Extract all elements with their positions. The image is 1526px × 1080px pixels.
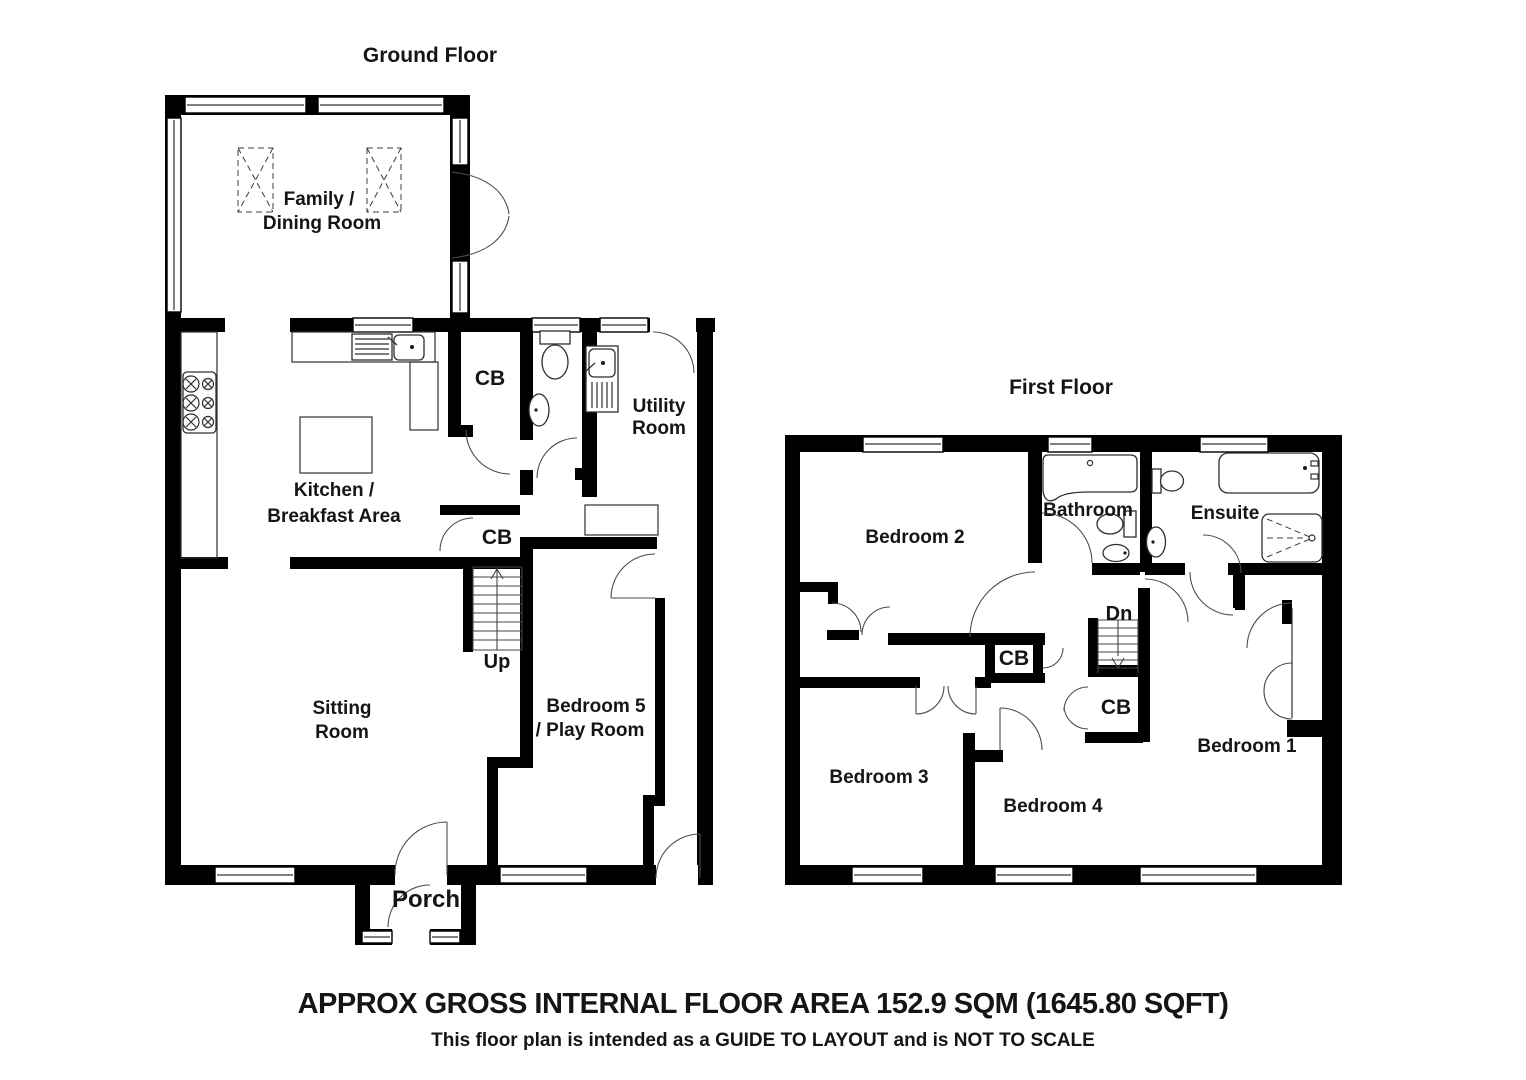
ground-floor-windows (167, 97, 648, 943)
svg-text:Room: Room (315, 722, 369, 743)
first-floor-doors (832, 513, 1292, 750)
svg-text:/ Play Room: / Play Room (536, 720, 645, 741)
room-label-family-dining: Family / Dining Room (263, 189, 381, 234)
svg-text:Room: Room (632, 418, 686, 439)
hob-icon (183, 372, 216, 433)
room-label-sitting: Sitting Room (312, 698, 371, 743)
svg-text:Family /: Family / (284, 189, 355, 210)
kitchen-sink-icon (352, 334, 424, 360)
ground-floor-walls (165, 95, 715, 945)
shower-icon (1262, 514, 1322, 562)
svg-text:Dining Room: Dining Room (263, 213, 381, 234)
cupboard-label-landing: CB (999, 647, 1029, 670)
cupboard-label-hall: CB (482, 526, 512, 549)
room-label-porch: Porch (392, 886, 460, 913)
bath-icon (1219, 453, 1319, 493)
first-floor-plan: First Floor Bedroom 2 Bathroom Ensuite D… (785, 376, 1342, 885)
footer: APPROX GROSS INTERNAL FLOOR AREA 152.9 S… (298, 988, 1229, 1051)
room-label-kitchen: Kitchen / Breakfast Area (267, 480, 401, 527)
ground-floor-plan: Ground Floor Family / Dining Room Kitche… (165, 44, 715, 945)
room-label-bedroom4: Bedroom 4 (1003, 796, 1103, 817)
svg-text:Sitting: Sitting (312, 698, 371, 719)
cupboard-label-under-stairs: CB (1101, 696, 1131, 719)
utility-sink-icon (586, 346, 618, 412)
floorplan-canvas: Ground Floor Family / Dining Room Kitche… (0, 0, 1526, 1080)
cupboard-label-top: CB (475, 367, 505, 390)
ground-floor-title: Ground Floor (363, 44, 497, 67)
svg-text:Bedroom 5: Bedroom 5 (546, 696, 646, 717)
basin-icon (529, 394, 549, 426)
room-label-ensuite: Ensuite (1191, 503, 1260, 524)
roof-lantern-icon (367, 148, 401, 212)
room-label-utility: Utility Room (632, 396, 686, 439)
room-label-bedroom1: Bedroom 1 (1197, 736, 1297, 757)
first-floor-title: First Floor (1009, 376, 1113, 399)
stairs-up-label: Up (484, 651, 511, 673)
room-label-bedroom5: Bedroom 5 / Play Room (536, 696, 646, 741)
footer-area-text: APPROX GROSS INTERNAL FLOOR AREA 152.9 S… (298, 988, 1229, 1020)
svg-text:Kitchen /: Kitchen / (294, 480, 375, 501)
stairs-up (473, 567, 522, 650)
toilet-icon (540, 331, 570, 379)
p-shaped-bath-icon (1043, 455, 1137, 501)
footer-disclaimer-text: This floor plan is intended as a GUIDE T… (431, 1030, 1095, 1051)
svg-text:Breakfast Area: Breakfast Area (267, 506, 401, 527)
basin-icon (1103, 545, 1129, 562)
toilet-icon (1152, 469, 1184, 493)
room-label-bathroom: Bathroom (1043, 500, 1133, 521)
stairs-down-label: Dn (1106, 603, 1133, 625)
room-label-bedroom2: Bedroom 2 (865, 527, 964, 548)
roof-lantern-icon (238, 148, 273, 212)
basin-icon (1147, 527, 1166, 557)
svg-text:Utility: Utility (633, 396, 686, 417)
room-label-bedroom3: Bedroom 3 (829, 767, 928, 788)
